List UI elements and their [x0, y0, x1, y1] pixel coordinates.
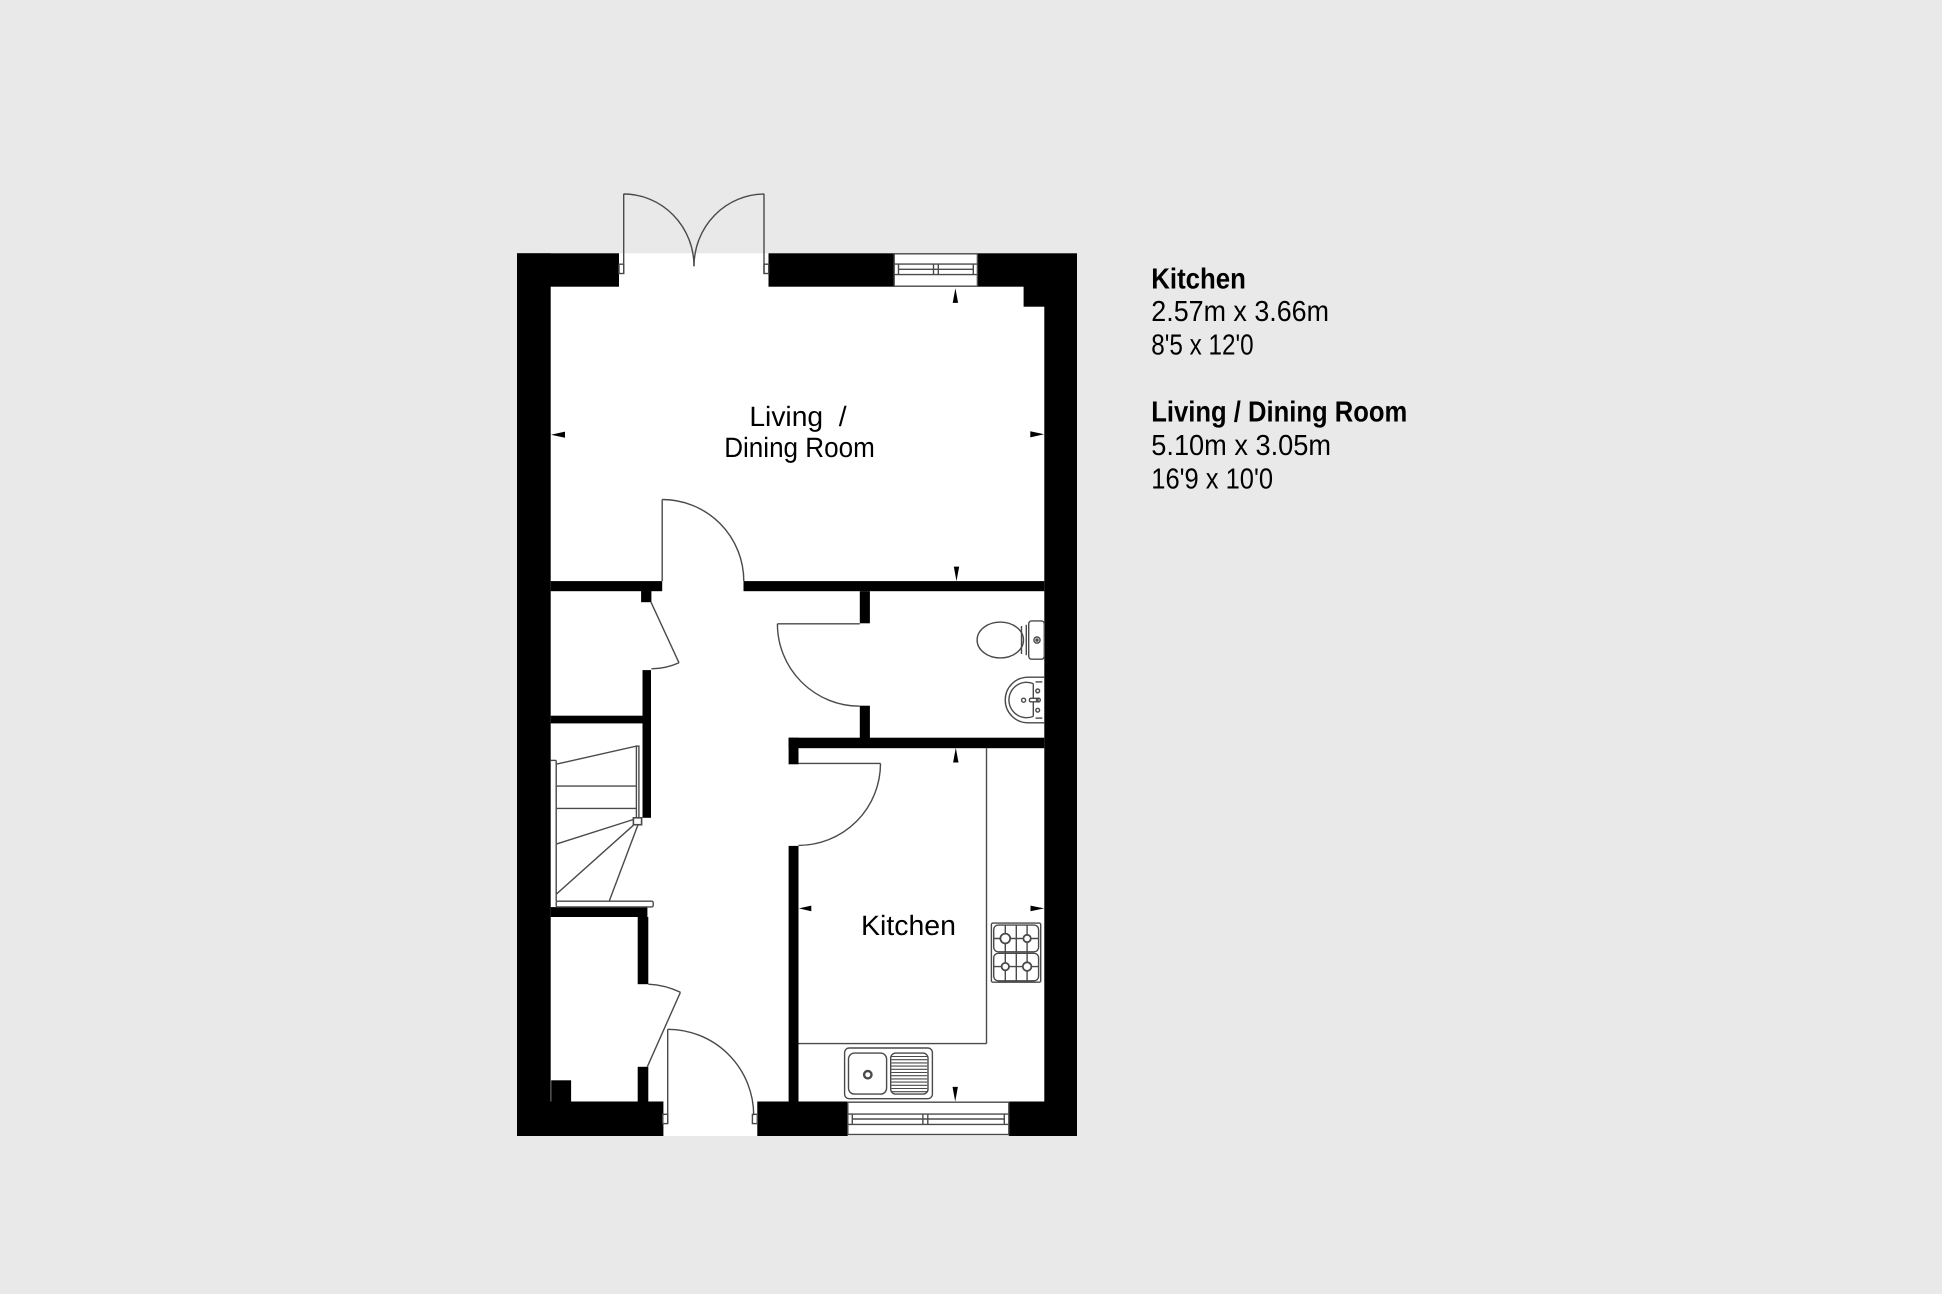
svg-text:Living /: Living / [749, 401, 847, 432]
svg-text:16'9 x 10'0: 16'9 x 10'0 [1151, 464, 1273, 496]
svg-text:Kitchen: Kitchen [1151, 263, 1246, 295]
svg-text:Kitchen: Kitchen [861, 910, 956, 941]
svg-text:8'5 x 12'0: 8'5 x 12'0 [1151, 329, 1253, 361]
svg-text:2.57m x 3.66m: 2.57m x 3.66m [1151, 296, 1329, 328]
svg-text:Living / Dining Room: Living / Dining Room [1151, 397, 1407, 429]
svg-text:Dining Room: Dining Room [724, 432, 875, 463]
svg-text:5.10m x 3.05m: 5.10m x 3.05m [1151, 430, 1331, 462]
